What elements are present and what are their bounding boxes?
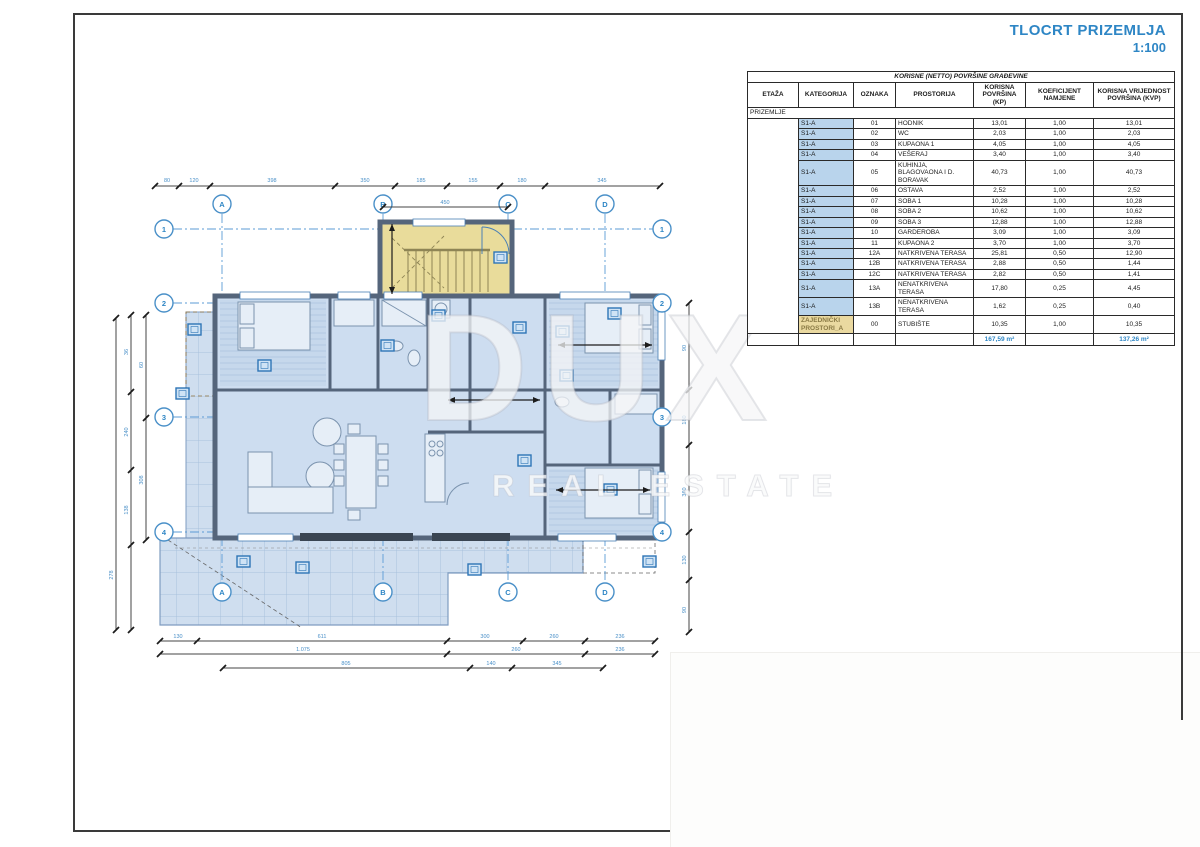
table-row: S1-A09SOBA 312,881,0012,88	[748, 217, 1175, 227]
watermark-logo: DUX	[418, 292, 781, 444]
kvp-cell: 3,70	[1094, 238, 1175, 248]
kategorija-cell: S1-A	[799, 217, 854, 227]
dim-top-1: 80	[164, 178, 170, 184]
kvp-cell: 12,90	[1094, 248, 1175, 258]
grid-label-d-top: D	[602, 200, 608, 209]
kp-cell: 25,81	[974, 248, 1026, 258]
prostorija-cell: NATKRIVENA TERASA	[896, 248, 974, 258]
kategorija-cell: S1-A	[799, 139, 854, 149]
drawing-sheet: A B C D A B C D 1 2 3 4 1 2 3 4	[0, 0, 1200, 847]
kvp-cell: 3,09	[1094, 228, 1175, 238]
prostorija-cell: SOBA 3	[896, 217, 974, 227]
table-row: S1-A01HODNIK13,011,0013,01	[748, 118, 1175, 128]
prostorija-cell: VEŠERAJ	[896, 150, 974, 160]
kvp-cell: 2,03	[1094, 129, 1175, 139]
koef-cell: 1,00	[1026, 129, 1094, 139]
koef-cell: 1,00	[1026, 160, 1094, 185]
dim-bottom3-3: 345	[552, 661, 561, 667]
dim-right-4: 130	[682, 555, 688, 564]
prostorija-cell: KUPAONA 2	[896, 238, 974, 248]
kp-cell: 10,35	[974, 316, 1026, 334]
grid-label-a-top: A	[219, 200, 225, 209]
table-title: KORISNE (NETTO) POVRŠINE GRAĐEVINE	[748, 72, 1175, 83]
kp-cell: 2,82	[974, 269, 1026, 279]
table-row: S1-A03KUPAONA 14,051,004,05	[748, 139, 1175, 149]
grid-label-1-left: 1	[162, 225, 166, 234]
oznaka-cell: 01	[854, 118, 896, 128]
koef-cell: 1,00	[1026, 217, 1094, 227]
table-row: S1-A06OSTAVA2,521,002,52	[748, 186, 1175, 196]
kvp-cell: 10,28	[1094, 196, 1175, 206]
col-header-kp: KORISNA POVRŠINA (KP)	[974, 83, 1026, 108]
koef-cell: 1,00	[1026, 228, 1094, 238]
kp-cell: 4,05	[974, 139, 1026, 149]
dim-bottom1-2: 611	[318, 634, 327, 640]
dim-top-7: 180	[517, 178, 526, 184]
kvp-cell: 10,62	[1094, 207, 1175, 217]
koef-cell: 1,00	[1026, 139, 1094, 149]
grid-label-b-bottom: B	[380, 588, 386, 597]
kp-cell: 17,80	[974, 280, 1026, 298]
dim-bottom2-3: 236	[615, 647, 624, 653]
dim-bottom2-2: 260	[511, 647, 520, 653]
dim-left-1: 36	[124, 349, 130, 355]
totals-koef-cell	[1026, 334, 1094, 346]
kategorija-cell: S1-A	[799, 280, 854, 298]
oznaka-cell: 08	[854, 207, 896, 217]
kvp-cell: 4,45	[1094, 280, 1175, 298]
kategorija-cell: S1-A	[799, 150, 854, 160]
prostorija-cell: SOBA 2	[896, 207, 974, 217]
koef-cell: 1,00	[1026, 118, 1094, 128]
kvp-cell: 0,40	[1094, 298, 1175, 316]
oznaka-cell: 13A	[854, 280, 896, 298]
kategorija-cell: S1-A	[799, 207, 854, 217]
prostorija-cell: STUBIŠTE	[896, 316, 974, 334]
dim-top-5: 185	[416, 178, 425, 184]
grid-label-1-right: 1	[660, 225, 664, 234]
kategorija-cell: S1-A	[799, 118, 854, 128]
table-header-row: ETAŽA KATEGORIJA OZNAKA PROSTORIJA KORIS…	[748, 83, 1175, 108]
prostorija-cell: KUHINJA, BLAGOVAONA I D. BORAVAK	[896, 160, 974, 185]
dim-bottom2-1: 1.075	[296, 647, 310, 653]
dim-bottom1-1: 130	[173, 634, 182, 640]
koef-cell: 0,50	[1026, 269, 1094, 279]
dim-right-5: 90	[682, 607, 688, 613]
kategorija-cell: S1-A	[799, 129, 854, 139]
kvp-cell: 13,01	[1094, 118, 1175, 128]
col-header-kvp: KORISNA VRIJEDNOST POVRŠINA (KVP)	[1094, 83, 1175, 108]
kategorija-cell: S1-A	[799, 228, 854, 238]
totals-oznaka-cell	[854, 334, 896, 346]
koef-cell: 1,00	[1026, 150, 1094, 160]
kategorija-cell: S1-A	[799, 298, 854, 316]
oznaka-cell: 00	[854, 316, 896, 334]
totals-prostorija-cell	[896, 334, 974, 346]
grid-label-d-bottom: D	[602, 588, 608, 597]
prostorija-cell: OSTAVA	[896, 186, 974, 196]
koef-cell: 1,00	[1026, 316, 1094, 334]
oznaka-cell: 12B	[854, 259, 896, 269]
dim-left-6: 278	[109, 570, 115, 579]
table-row: S1-A11KUPAONA 23,701,003,70	[748, 238, 1175, 248]
dim-left-5: 308	[139, 475, 145, 484]
col-header-etaza: ETAŽA	[748, 83, 799, 108]
oznaka-cell: 02	[854, 129, 896, 139]
table-row: S1-A12ANATKRIVENA TERASA25,810,5012,90	[748, 248, 1175, 258]
oznaka-cell: 10	[854, 228, 896, 238]
table-row: S1-A07SOBA 110,281,0010,28	[748, 196, 1175, 206]
kategorija-cell: S1-A	[799, 186, 854, 196]
koef-cell: 0,50	[1026, 248, 1094, 258]
oznaka-cell: 11	[854, 238, 896, 248]
kp-cell: 3,70	[974, 238, 1026, 248]
area-table: KORISNE (NETTO) POVRŠINE GRAĐEVINE ETAŽA…	[747, 71, 1174, 346]
dim-top-3: 398	[267, 178, 276, 184]
prostorija-cell: HODNIK	[896, 118, 974, 128]
table-row: S1-A04VEŠERAJ3,401,003,40	[748, 150, 1175, 160]
grid-label-3-left: 3	[162, 413, 166, 422]
koef-cell: 0,25	[1026, 280, 1094, 298]
kategorija-cell: S1-A	[799, 269, 854, 279]
table-row: S1-A10GARDEROBA3,091,003,09	[748, 228, 1175, 238]
drawing-scale: 1:100	[1010, 40, 1166, 55]
oznaka-cell: 03	[854, 139, 896, 149]
kategorija-cell: S1-A	[799, 196, 854, 206]
table-row: S1-A02WC2,031,002,03	[748, 129, 1175, 139]
oznaka-cell: 12C	[854, 269, 896, 279]
dim-top-4: 350	[360, 178, 369, 184]
dim-top-2: 120	[189, 178, 198, 184]
table-title-row: KORISNE (NETTO) POVRŠINE GRAĐEVINE	[748, 72, 1175, 83]
koef-cell: 1,00	[1026, 186, 1094, 196]
kategorija-cell: ZAJEDNIČKI PROSTORI_A	[799, 316, 854, 334]
oznaka-cell: 13B	[854, 298, 896, 316]
sheet-border-segment	[1181, 652, 1183, 720]
koef-cell: 0,25	[1026, 298, 1094, 316]
area-table-body: PRIZEMLJE S1-A01HODNIK13,011,0013,01S1-A…	[748, 108, 1175, 346]
totals-etaza-cell	[748, 334, 799, 346]
prostorija-cell: GARDEROBA	[896, 228, 974, 238]
kp-cell: 2,52	[974, 186, 1026, 196]
kvp-cell: 10,35	[1094, 316, 1175, 334]
prostorija-cell: NATKRIVENA TERASA	[896, 259, 974, 269]
kvp-cell: 1,44	[1094, 259, 1175, 269]
table-row: S1-A05KUHINJA, BLAGOVAONA I D. BORAVAK40…	[748, 160, 1175, 185]
grid-label-2-left: 2	[162, 299, 166, 308]
dim-bottom1-5: 236	[615, 634, 624, 640]
kp-cell: 12,88	[974, 217, 1026, 227]
oznaka-cell: 07	[854, 196, 896, 206]
kp-cell: 10,28	[974, 196, 1026, 206]
oznaka-cell: 09	[854, 217, 896, 227]
table-row: S1-A13BNENATKRIVENA TERASA1,620,250,40	[748, 298, 1175, 316]
kp-cell: 10,62	[974, 207, 1026, 217]
dim-left-4: 60	[139, 362, 145, 368]
floor-band-row: PRIZEMLJE	[748, 108, 1175, 118]
oznaka-cell: 06	[854, 186, 896, 196]
grid-label-c-bottom: C	[505, 588, 511, 597]
kp-cell: 2,88	[974, 259, 1026, 269]
kvp-cell: 3,40	[1094, 150, 1175, 160]
kp-cell: 3,40	[974, 150, 1026, 160]
total-kp: 167,59 m²	[974, 334, 1026, 346]
kvp-cell: 4,05	[1094, 139, 1175, 149]
kp-cell: 40,73	[974, 160, 1026, 185]
col-header-oznaka: OZNAKA	[854, 83, 896, 108]
blank-overlay-box	[670, 652, 1200, 847]
prostorija-cell: KUPAONA 1	[896, 139, 974, 149]
dim-left-3: 138	[124, 505, 130, 514]
dim-bottom1-3: 300	[480, 634, 489, 640]
grid-label-a-bottom: A	[219, 588, 225, 597]
oznaka-cell: 05	[854, 160, 896, 185]
koef-cell: 1,00	[1026, 207, 1094, 217]
koef-cell: 0,50	[1026, 259, 1094, 269]
watermark-subtitle: REAL ESTATE	[492, 468, 845, 504]
page-title: TLOCRT PRIZEMLJA	[1010, 22, 1166, 39]
dim-bottom1-4: 260	[549, 634, 558, 640]
kategorija-cell: S1-A	[799, 160, 854, 185]
oznaka-cell: 12A	[854, 248, 896, 258]
prostorija-cell: NENATKRIVENA TERASA	[896, 280, 974, 298]
dim-left-2: 240	[124, 427, 130, 436]
prostorija-cell: SOBA 1	[896, 196, 974, 206]
prostorija-cell: NATKRIVENA TERASA	[896, 269, 974, 279]
table-row: S1-A13ANENATKRIVENA TERASA17,800,254,45	[748, 280, 1175, 298]
table-row: S1-A12CNATKRIVENA TERASA2,820,501,41	[748, 269, 1175, 279]
col-header-kategorija: KATEGORIJA	[799, 83, 854, 108]
kategorija-cell: S1-A	[799, 248, 854, 258]
totals-row: 167,59 m² 137,26 m²	[748, 334, 1175, 346]
table-row: S1-A12BNATKRIVENA TERASA2,880,501,44	[748, 259, 1175, 269]
kvp-cell: 12,88	[1094, 217, 1175, 227]
kp-cell: 13,01	[974, 118, 1026, 128]
floor-band-label: PRIZEMLJE	[748, 108, 1175, 118]
kvp-cell: 1,41	[1094, 269, 1175, 279]
dim-top-8: 345	[597, 178, 606, 184]
dim-bottom3-1: 805	[341, 661, 350, 667]
table-row: S1-A08SOBA 210,621,0010,62	[748, 207, 1175, 217]
kvp-cell: 40,73	[1094, 160, 1175, 185]
koef-cell: 1,00	[1026, 196, 1094, 206]
kp-cell: 3,09	[974, 228, 1026, 238]
etaza-cell	[748, 118, 799, 333]
kp-cell: 2,03	[974, 129, 1026, 139]
table-row: ZAJEDNIČKI PROSTORI_A00STUBIŠTE10,351,00…	[748, 316, 1175, 334]
kvp-cell: 2,52	[1094, 186, 1175, 196]
kategorija-cell: S1-A	[799, 259, 854, 269]
totals-kategorija-cell	[799, 334, 854, 346]
drawing-title-block: TLOCRT PRIZEMLJA 1:100	[1010, 22, 1166, 55]
col-header-prostorija: PROSTORIJA	[896, 83, 974, 108]
kp-cell: 1,62	[974, 298, 1026, 316]
total-kvp: 137,26 m²	[1094, 334, 1175, 346]
koef-cell: 1,00	[1026, 238, 1094, 248]
col-header-koeficijent: KOEFICIJENT NAMJENE	[1026, 83, 1094, 108]
dim-bottom3-2: 140	[486, 661, 495, 667]
dim-top-sub: 450	[440, 200, 449, 206]
prostorija-cell: NENATKRIVENA TERASA	[896, 298, 974, 316]
dim-top-6: 155	[468, 178, 477, 184]
oznaka-cell: 04	[854, 150, 896, 160]
prostorija-cell: WC	[896, 129, 974, 139]
kategorija-cell: S1-A	[799, 238, 854, 248]
